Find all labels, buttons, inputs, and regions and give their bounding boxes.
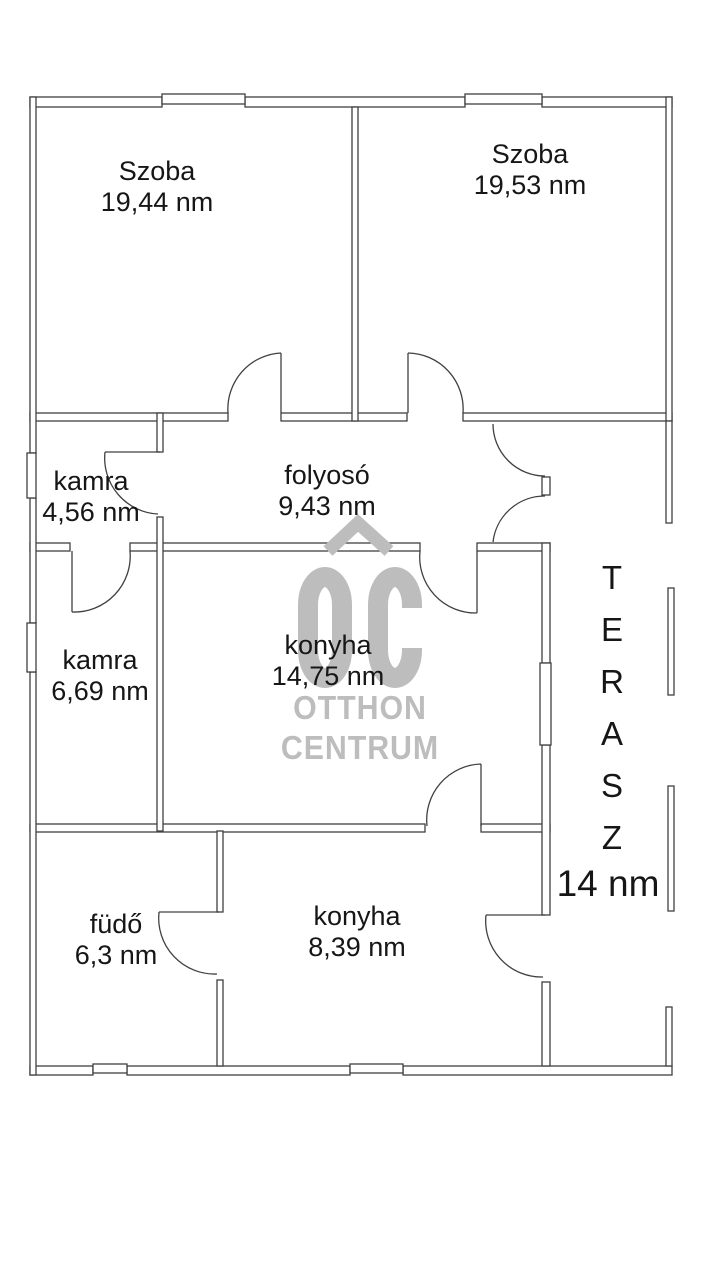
door-arc (486, 915, 543, 977)
room-label-kamra-1: kamra 4,56 nm (42, 466, 140, 528)
door-arc (427, 764, 481, 826)
room-area: 6,3 nm (75, 940, 158, 971)
wall (542, 982, 550, 1066)
terasz-letter: E (600, 604, 624, 656)
wall (217, 980, 223, 1066)
watermark-line2: CENTRUM (281, 729, 439, 767)
window (540, 663, 551, 745)
room-label-kamra-2: kamra 6,69 nm (51, 645, 149, 707)
room-name: füdő (75, 909, 158, 940)
wall (481, 824, 550, 832)
terasz-letter: S (600, 760, 624, 812)
room-label-konyha-2: konyha 8,39 nm (308, 901, 406, 963)
terasz-area: 14 nm (557, 863, 660, 905)
room-name: folyosó (278, 460, 376, 491)
window (350, 1064, 403, 1073)
wall (245, 97, 465, 107)
wall (30, 498, 36, 623)
room-name: kamra (51, 645, 149, 676)
wall (542, 745, 550, 915)
door-arc (159, 912, 217, 974)
wall (666, 97, 672, 421)
terasz-letter: Z (600, 812, 624, 864)
window (27, 453, 36, 498)
room-label-terasz: T E R A S Z (600, 552, 624, 864)
wall (127, 1066, 350, 1075)
wall (157, 413, 163, 452)
terasz-letter: T (600, 552, 624, 604)
wall (542, 477, 550, 495)
floorplan: OTTHON CENTRUM Szoba 19,44 nm Szoba 19,5… (0, 0, 720, 1280)
wall (352, 107, 358, 421)
wall (477, 543, 550, 551)
wall (157, 517, 163, 831)
room-name: konyha (308, 901, 406, 932)
room-area: 6,69 nm (51, 676, 149, 707)
terasz-letter: A (600, 708, 624, 760)
wall (666, 1007, 672, 1066)
wall (542, 97, 672, 107)
wall (30, 97, 36, 453)
wall (217, 831, 223, 912)
room-label-folyoso: folyosó 9,43 nm (278, 460, 376, 522)
window (93, 1064, 127, 1073)
wall (30, 413, 228, 421)
room-name: kamra (42, 466, 140, 497)
room-label-szoba-1: Szoba 19,44 nm (101, 156, 214, 218)
door-arc (408, 353, 463, 413)
room-area: 4,56 nm (42, 497, 140, 528)
room-name: Szoba (474, 139, 587, 170)
door-arc (493, 424, 545, 476)
wall (668, 588, 674, 695)
room-name: konyha (272, 630, 385, 661)
wall (30, 672, 36, 1075)
room-label-szoba-2: Szoba 19,53 nm (474, 139, 587, 201)
door-arc (420, 551, 477, 613)
terasz-letter: R (600, 656, 624, 708)
door-arc (72, 551, 130, 612)
room-label-fudo: füdő 6,3 nm (75, 909, 158, 971)
wall (30, 1066, 93, 1075)
watermark-line1: OTTHON (293, 689, 427, 727)
wall (30, 824, 425, 832)
room-name: Szoba (101, 156, 214, 187)
room-area: 19,53 nm (474, 170, 587, 201)
room-area: 9,43 nm (278, 491, 376, 522)
window (162, 94, 245, 104)
wall (463, 413, 672, 421)
wall (542, 543, 550, 663)
window (27, 623, 36, 672)
wall (281, 413, 407, 421)
wall (666, 421, 672, 523)
wall (668, 786, 674, 911)
room-area: 8,39 nm (308, 932, 406, 963)
room-label-konyha-1: konyha 14,75 nm (272, 630, 385, 692)
room-area: 14,75 nm (272, 661, 385, 692)
wall (30, 97, 162, 107)
window (465, 94, 542, 104)
door-arc (493, 496, 545, 542)
door-arc (228, 353, 281, 413)
wall (403, 1066, 672, 1075)
oc-logo-c-gap (398, 608, 430, 648)
room-area: 19,44 nm (101, 187, 214, 218)
